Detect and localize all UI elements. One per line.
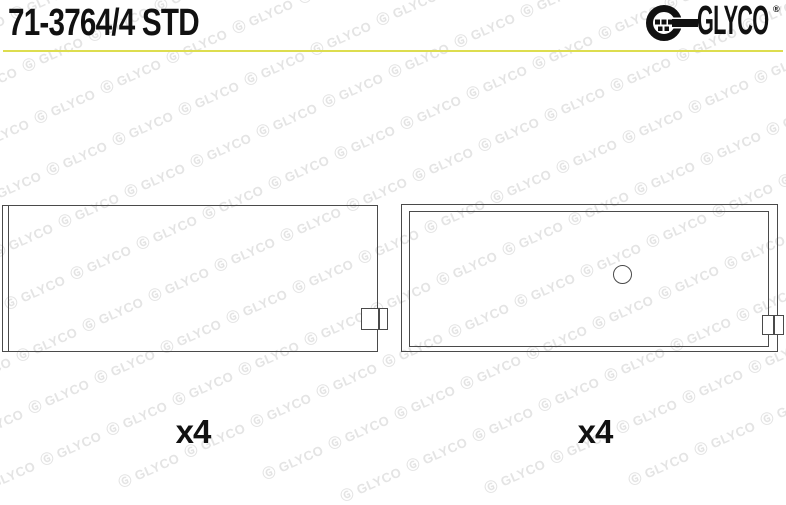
shell-parting-edge-line <box>8 205 10 352</box>
glyco-logo-icon <box>646 3 698 48</box>
shell-inner-surface-outline <box>409 211 769 347</box>
quantity-label-right: x4 <box>555 413 635 451</box>
header-divider-rule <box>3 50 783 52</box>
brand-logo: GLYCO ® <box>646 3 786 45</box>
oil-hole <box>613 265 632 284</box>
quantity-label-left: x4 <box>153 413 233 451</box>
shell-outline <box>2 205 378 352</box>
locating-tab <box>361 308 388 330</box>
bearing-shell-drawing-oil-hole <box>401 204 778 352</box>
tab-divider-line <box>773 316 775 334</box>
brand-name: GLYCO <box>697 0 768 44</box>
bearing-shell-drawing-plain <box>2 205 378 352</box>
part-number-title: 71-3764/4 STD <box>8 2 199 45</box>
tab-divider-line <box>378 309 380 329</box>
locating-tab <box>762 315 784 335</box>
registered-trademark-symbol: ® <box>773 4 780 14</box>
